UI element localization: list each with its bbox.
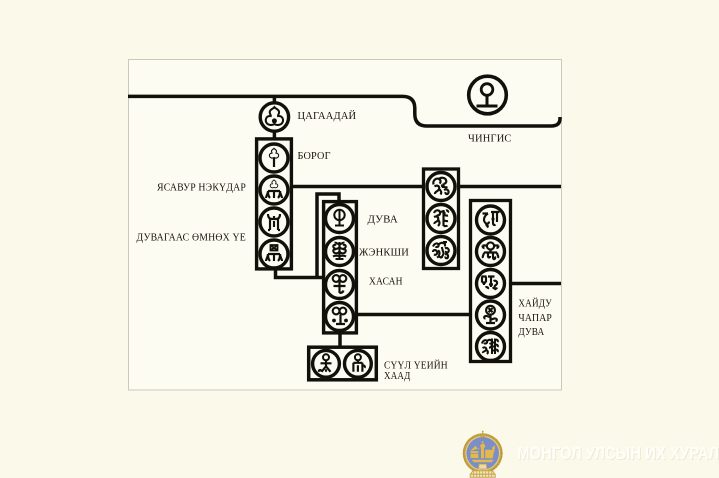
svg-text:ДУВА: ДУВА <box>518 326 544 338</box>
svg-text:ДУВАГААС ӨМНӨХ ҮЕ: ДУВАГААС ӨМНӨХ ҮЕ <box>137 232 246 244</box>
svg-text:ЧИНГИС: ЧИНГИС <box>468 132 512 144</box>
svg-text:ЦАГААДАЙ: ЦАГААДАЙ <box>298 110 357 122</box>
svg-text:БОРОГ: БОРОГ <box>298 150 331 162</box>
svg-text:ЧАПАР: ЧАПАР <box>518 312 552 324</box>
svg-text:ЖЭНКШИ: ЖЭНКШИ <box>359 246 409 258</box>
svg-text:ХАСАН: ХАСАН <box>369 276 403 288</box>
svg-text:ХААД: ХААД <box>384 370 411 382</box>
svg-text:ЯСАВУР НЭКҮДАР: ЯСАВУР НЭКҮДАР <box>157 181 246 193</box>
svg-text:МОНГОЛ УЛСЫН ИХ ХУРАЛ: МОНГОЛ УЛСЫН ИХ ХУРАЛ <box>517 443 719 463</box>
svg-text:ХАЙДУ: ХАЙДУ <box>518 297 552 309</box>
svg-text:ДУВА: ДУВА <box>368 213 399 225</box>
